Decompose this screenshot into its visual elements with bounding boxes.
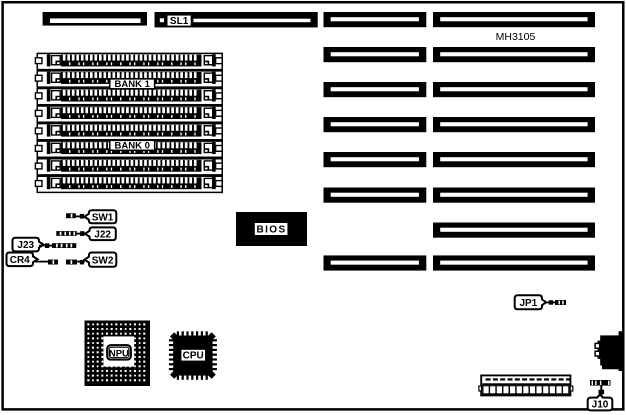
svg-text:SL1: SL1 xyxy=(170,16,189,27)
svg-text:J22: J22 xyxy=(94,229,111,240)
svg-text:BANK 1: BANK 1 xyxy=(115,79,151,90)
svg-text:CR4: CR4 xyxy=(10,255,30,266)
svg-text:NPU: NPU xyxy=(109,348,129,359)
svg-text:SW2: SW2 xyxy=(92,255,114,266)
svg-text:J10: J10 xyxy=(592,400,609,411)
svg-text:J23: J23 xyxy=(17,240,34,251)
svg-text:MH3105: MH3105 xyxy=(496,31,536,43)
svg-text:BANK 0: BANK 0 xyxy=(115,140,150,151)
svg-text:CPU: CPU xyxy=(183,351,204,362)
svg-text:BIOS: BIOS xyxy=(256,224,286,235)
svg-text:SW1: SW1 xyxy=(92,212,114,223)
svg-text:JP1: JP1 xyxy=(519,298,537,309)
